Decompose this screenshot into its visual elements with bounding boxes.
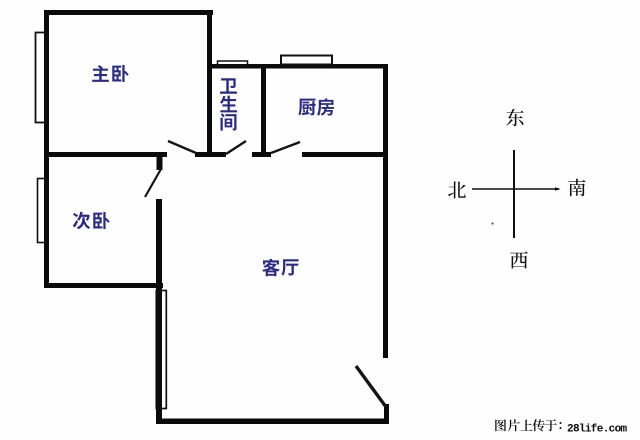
svg-text:28life.com: 28life.com (567, 423, 628, 435)
